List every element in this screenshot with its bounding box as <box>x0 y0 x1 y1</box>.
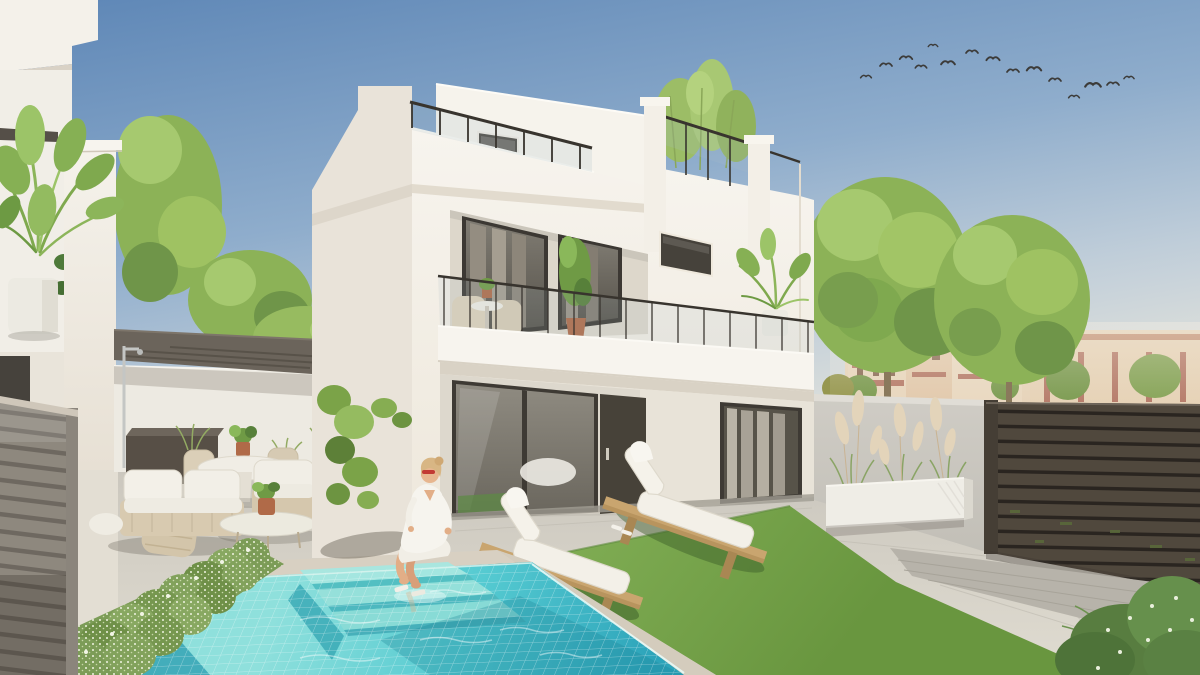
render-canvas: New-build modern villa with private pool… <box>0 0 1200 675</box>
villa-render-image: New-build modern villa with private pool… <box>0 0 1200 675</box>
terrace-pillar <box>644 102 666 252</box>
door-handle <box>606 448 609 460</box>
pouf <box>89 513 123 535</box>
fence-left-post <box>66 408 78 675</box>
fence-left <box>0 396 78 675</box>
right-boundary <box>814 390 986 552</box>
main-villa <box>312 59 815 558</box>
neighbor-window <box>0 356 30 404</box>
fence-post <box>984 400 998 554</box>
woman-sunglasses <box>422 470 435 474</box>
sliding-door-right <box>720 402 802 504</box>
